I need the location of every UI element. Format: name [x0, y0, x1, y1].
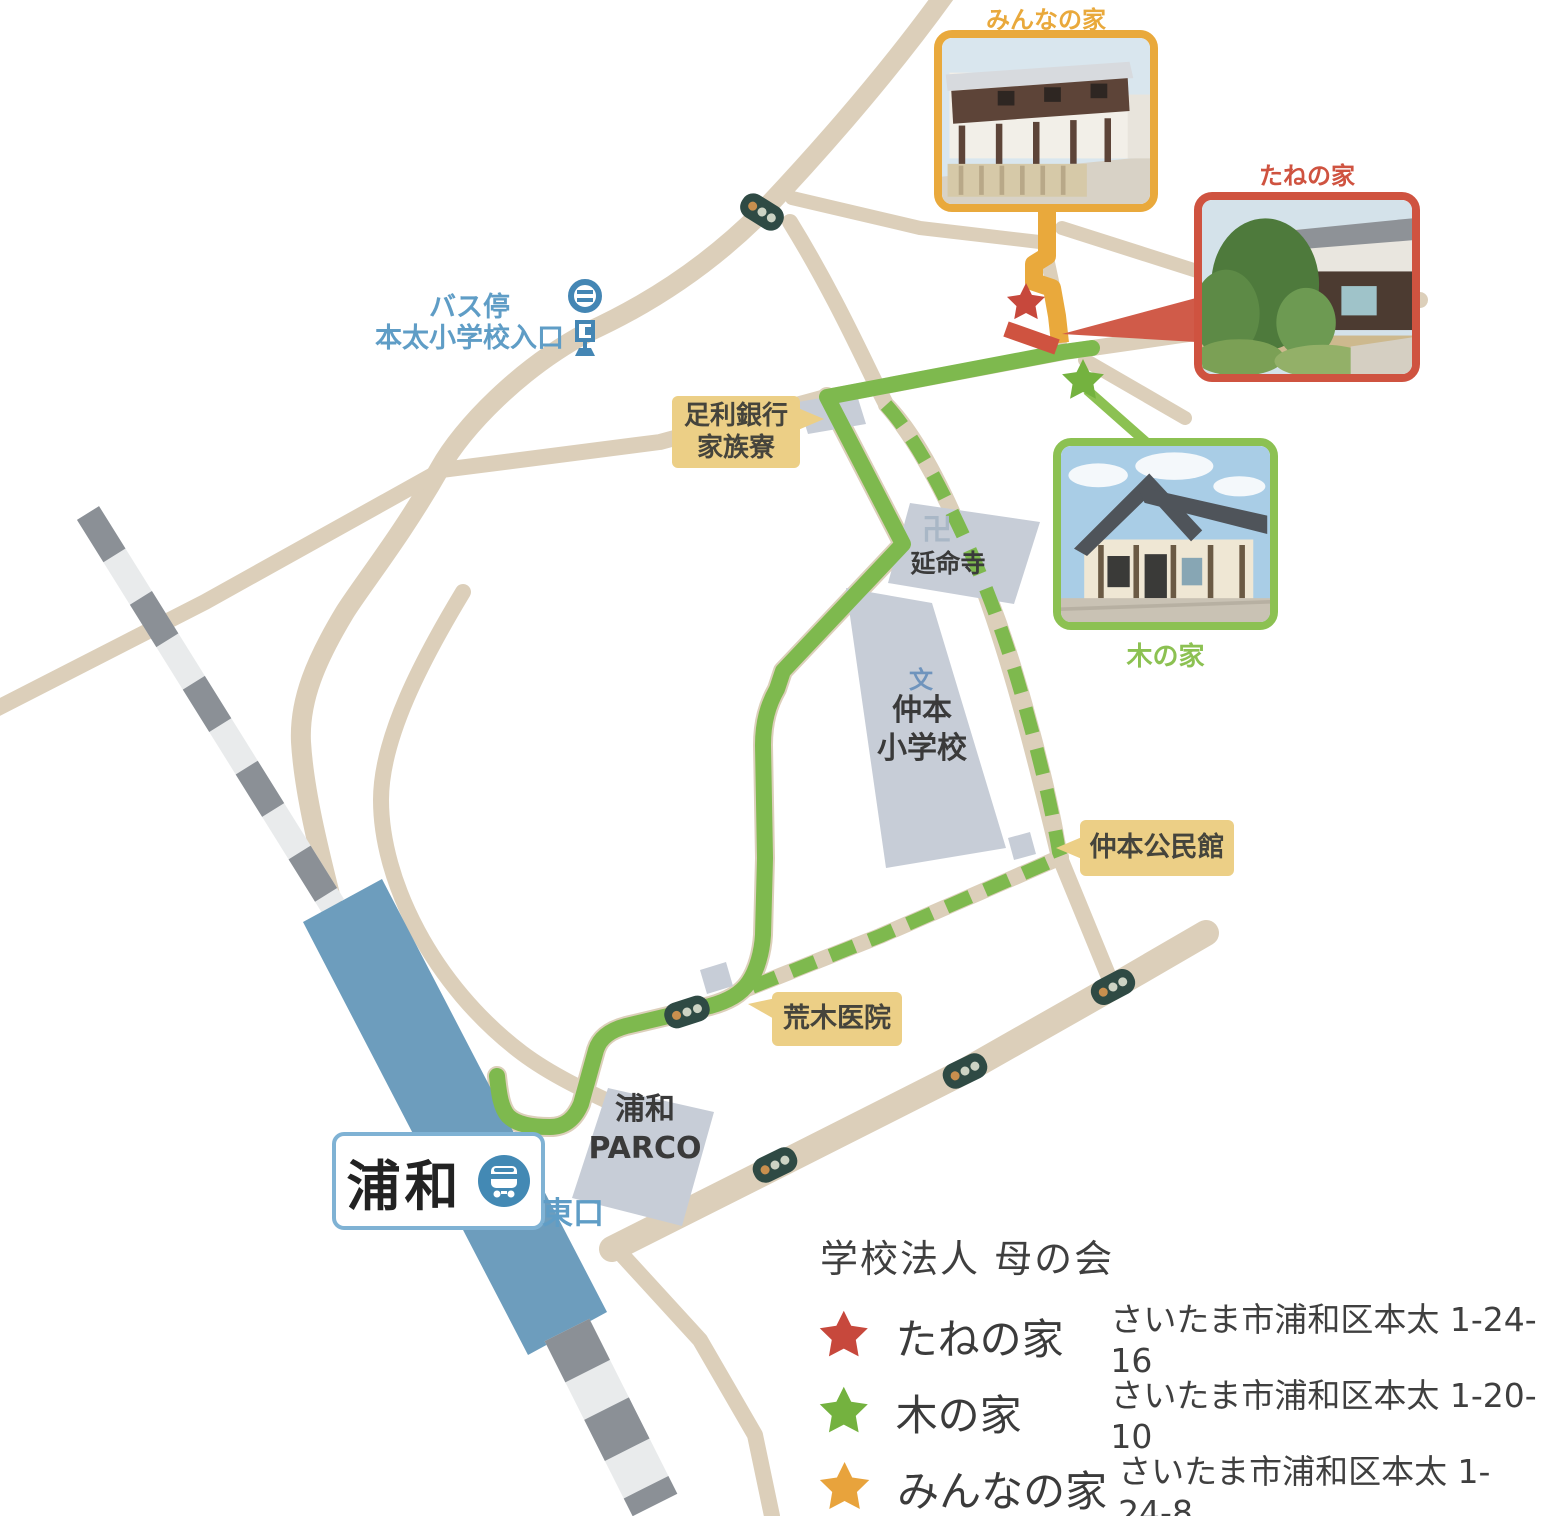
hall-label-pointer	[1056, 837, 1082, 859]
legend-title: 学校法人 母の会	[820, 1228, 1114, 1283]
ki-legend-star-icon	[816, 1382, 872, 1442]
minna-photo	[934, 30, 1158, 212]
bank-label: 足利銀行 家族寮	[672, 396, 800, 468]
access-map: 卍 文 バス停 本太小学校入口 足利銀行 家族寮 延命寺 仲本 小学校 仲本公民…	[0, 0, 1544, 1516]
road-ne-stub	[1062, 228, 1200, 272]
temple-symbol: 卍	[922, 513, 952, 548]
legend-label: みんなの家	[897, 1458, 1118, 1516]
tane-legend-star-icon	[816, 1306, 872, 1366]
clinic-name: 荒木医院	[783, 1002, 891, 1036]
clinic-label-pointer	[748, 998, 776, 1020]
tane-photo	[1194, 192, 1420, 382]
legend-label: 木の家	[896, 1382, 1111, 1443]
legend-address: さいたま市浦和区本太 1-24-16	[1110, 1293, 1544, 1380]
road-left	[0, 470, 442, 712]
route-red-segment	[1006, 329, 1057, 347]
tane-photo-pointer	[1062, 298, 1196, 342]
parco-line1: 浦和	[615, 1090, 675, 1129]
road-se-of-star	[1085, 360, 1185, 418]
bank-line1: 足利銀行	[684, 401, 788, 431]
minna-legend-star-icon	[816, 1458, 873, 1516]
train-icon	[477, 1154, 531, 1208]
legend-address: さいたま市浦和区本太 1-20-10	[1110, 1369, 1544, 1456]
temple-name: 延命寺	[888, 544, 1008, 580]
school-line1: 仲本	[892, 692, 952, 730]
tane-photo-label: たねの家	[1194, 156, 1420, 191]
bus-stop-line1: バス停	[429, 292, 510, 323]
station-name: 浦和	[347, 1142, 463, 1221]
bank-label-pointer	[798, 408, 824, 430]
hall-label: 仲本公民館	[1080, 820, 1234, 876]
legend-row-tane: たねの家 さいたま市浦和区本太 1-24-16	[816, 1306, 1544, 1366]
parco-label: 浦和 PARCO	[575, 1090, 715, 1168]
east-exit-label: 東口	[542, 1188, 604, 1233]
school-symbol: 文	[909, 666, 934, 694]
ki-photo-scene	[1061, 446, 1270, 622]
school-name: 仲本 小学校	[852, 692, 992, 767]
ki-photo	[1053, 438, 1278, 630]
legend-row-ki: 木の家 さいたま市浦和区本太 1-20-10	[816, 1382, 1544, 1442]
minna-photo-scene	[942, 38, 1150, 204]
legend-label: たねの家	[896, 1306, 1111, 1367]
station-label: 浦和	[332, 1132, 545, 1230]
bus-stop-line2: 本太小学校入口	[375, 323, 564, 354]
school-line2: 小学校	[877, 730, 967, 768]
bus-stop-label: バス停 本太小学校入口	[362, 292, 577, 354]
ki-photo-label: 木の家	[1053, 636, 1278, 673]
hall-name: 仲本公民館	[1090, 831, 1225, 865]
bank-line2: 家族寮	[697, 433, 775, 463]
tane-photo-scene	[1202, 200, 1412, 374]
hall-building	[1008, 832, 1036, 860]
legend-address: さいたま市浦和区本太 1-24-8	[1118, 1445, 1544, 1516]
legend-row-minna: みんなの家 さいたま市浦和区本太 1-24-8	[816, 1458, 1544, 1516]
parco-line2: PARCO	[588, 1129, 701, 1168]
clinic-label: 荒木医院	[772, 992, 902, 1046]
